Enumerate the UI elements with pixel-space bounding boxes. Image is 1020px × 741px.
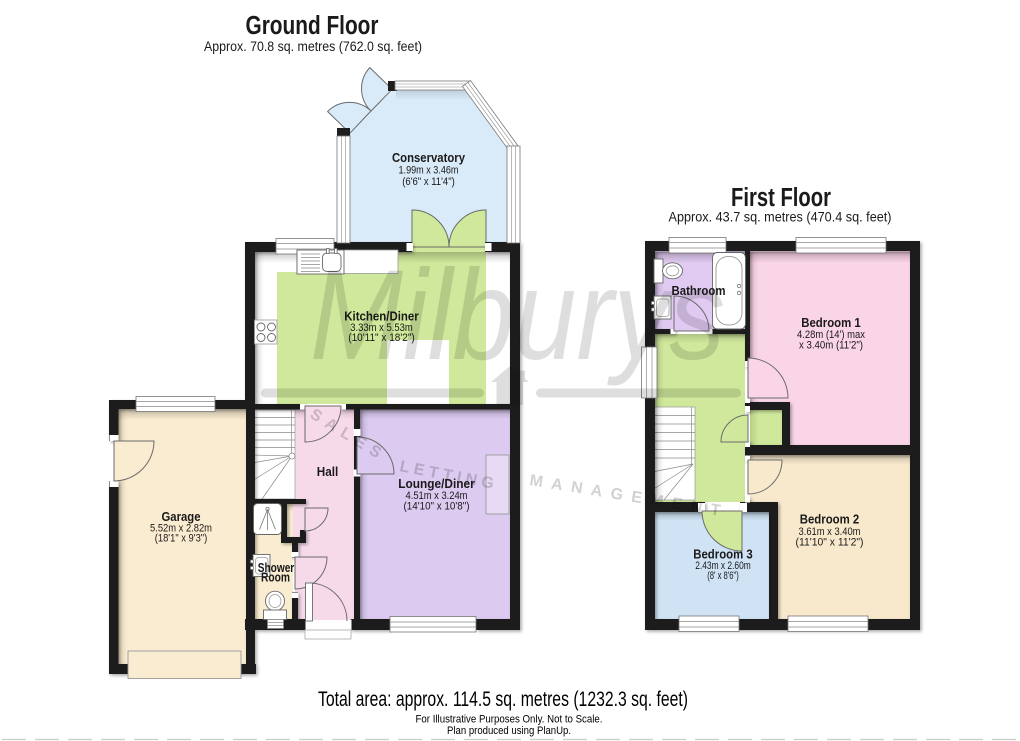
- svg-text:Hall: Hall: [317, 465, 339, 479]
- svg-text:Approx. 43.7 sq. metres (470.4: Approx. 43.7 sq. metres (470.4 sq. feet): [669, 210, 892, 225]
- svg-text:Total area: approx. 114.5 sq.: Total area: approx. 114.5 sq. metres (12…: [318, 688, 688, 711]
- svg-text:1.99m x 3.46m: 1.99m x 3.46m: [399, 165, 459, 177]
- svg-text:Bedroom 2: Bedroom 2: [800, 513, 860, 527]
- svg-text:First Floor: First Floor: [731, 184, 831, 212]
- svg-text:Plan produced using PlanUp.: Plan produced using PlanUp.: [447, 725, 571, 737]
- svg-text:(8' x 8'6"): (8' x 8'6"): [707, 570, 739, 582]
- svg-text:(18'1" x 9'3"): (18'1" x 9'3"): [155, 533, 208, 545]
- svg-text:Approx. 70.8 sq. metres (762.0: Approx. 70.8 sq. metres (762.0 sq. feet): [204, 39, 422, 54]
- svg-text:(6'6" x 11'4"): (6'6" x 11'4"): [402, 176, 455, 188]
- svg-text:For Illustrative Purposes Only: For Illustrative Purposes Only. Not to S…: [416, 714, 603, 726]
- svg-text:Room: Room: [261, 571, 290, 585]
- svg-text:Milburys: Milburys: [310, 244, 725, 387]
- svg-text:x 3.40m (11'2"): x 3.40m (11'2"): [799, 340, 863, 352]
- svg-text:Ground Floor: Ground Floor: [246, 12, 379, 40]
- svg-text:(11'10" x 11'2"): (11'10" x 11'2"): [796, 537, 864, 549]
- svg-text:Conservatory: Conservatory: [392, 151, 465, 165]
- svg-text:Bedroom 1: Bedroom 1: [801, 316, 861, 330]
- svg-text:(14'10" x 10'8"): (14'10" x 10'8"): [404, 501, 470, 513]
